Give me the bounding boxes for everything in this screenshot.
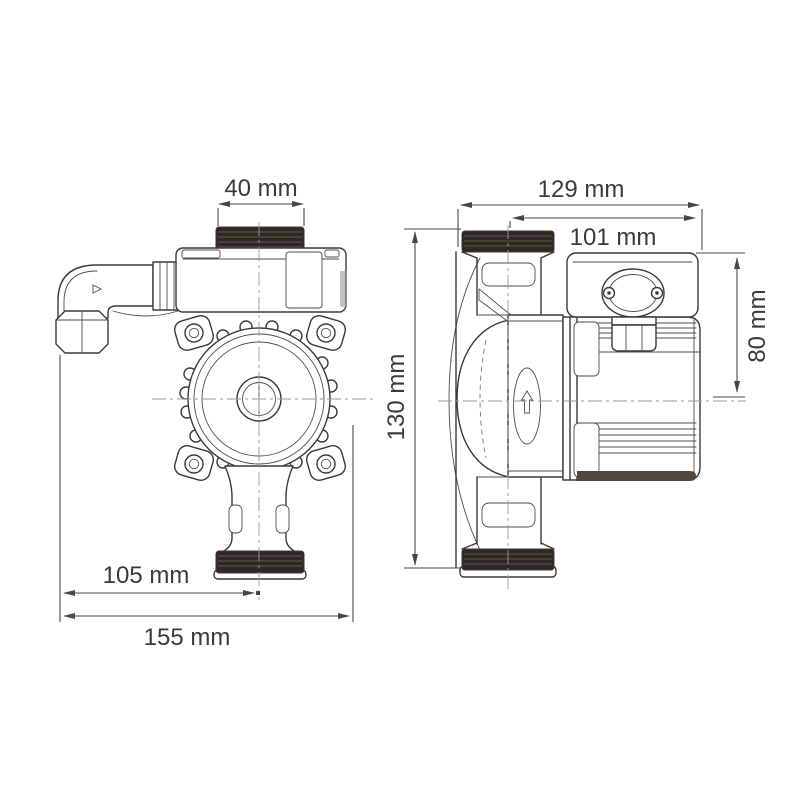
side-view bbox=[449, 231, 700, 577]
dimension-130mm-label: 130 mm bbox=[383, 354, 410, 441]
cable-gland bbox=[612, 317, 656, 351]
elbow-pipe bbox=[58, 262, 180, 318]
dimension-155mm-label: 155 mm bbox=[144, 624, 231, 651]
dimension-40mm: 40 mm bbox=[218, 175, 304, 226]
front-top-port bbox=[216, 227, 304, 250]
dimension-40mm-label: 40 mm bbox=[224, 175, 297, 202]
terminal-box bbox=[176, 248, 347, 312]
dimension-129mm-label: 129 mm bbox=[538, 176, 625, 203]
dimension-105mm-label: 105 mm bbox=[103, 562, 190, 589]
dimension-80mm: 80 mm bbox=[696, 253, 771, 397]
pump-front-plate bbox=[478, 315, 563, 477]
motor-flange bbox=[173, 314, 348, 483]
terminal-box-side bbox=[567, 253, 698, 317]
dimension-drawing: 40 mm 129 mm 101 mm 80 mm 130 mm 105 m bbox=[0, 0, 800, 800]
dimension-101mm-label: 101 mm bbox=[570, 224, 657, 251]
pump-technical-drawing: 40 mm 129 mm 101 mm 80 mm 130 mm 105 m bbox=[0, 0, 800, 800]
front-view bbox=[56, 227, 347, 579]
front-bottom-port bbox=[214, 551, 306, 579]
dimension-80mm-label: 80 mm bbox=[744, 289, 771, 362]
union-nut bbox=[56, 311, 108, 353]
